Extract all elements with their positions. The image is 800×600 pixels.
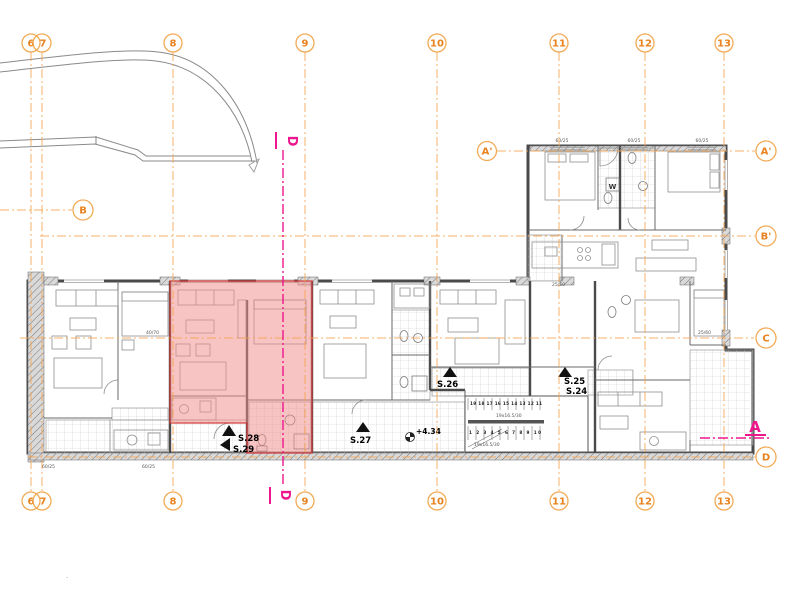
grid-bubble-aprime-right: A' (761, 147, 772, 158)
washer-label: W (609, 183, 617, 191)
unit-label-s24: S.24 (566, 387, 587, 397)
stair-step-numbers-upper: 19 18 17 16 15 14 13 12 11 (470, 401, 542, 406)
section-marker-d-bottom: D (277, 490, 292, 501)
grid-bubble-8-top: 8 (170, 39, 177, 50)
grid-bubble-11-bottom: 11 (552, 497, 566, 508)
grid-bubble-d-right: D (762, 453, 770, 464)
section-marker-d-top: D (284, 136, 299, 147)
floor-plan-canvas: 19 18 17 16 15 14 13 12 11 1 2 3 4 5 6 7… (0, 0, 800, 600)
grid-bubbles-bottom: 6 7 8 9 10 11 12 13 (22, 492, 733, 510)
grid-bubble-12-top: 12 (638, 39, 652, 50)
stair-handrail (468, 420, 544, 424)
site-boundary-curves (0, 51, 259, 172)
building: 19 18 17 16 15 14 13 12 11 1 2 3 4 5 6 7… (28, 138, 753, 470)
dim-text: 25/60 (698, 330, 711, 336)
stair-spec-upper: 19x16.5/30 (496, 413, 522, 419)
dim-text: 60/25 (628, 138, 641, 144)
dim-text: 40/70 (146, 330, 159, 336)
stair-step-numbers-lower: 1 2 3 4 5 6 7 8 9 10 (469, 430, 541, 435)
grid-bubble-13-bottom: 13 (717, 497, 731, 508)
grid-bubble-aprime-left: A' (482, 147, 493, 158)
grid-bubble-7-bottom: 7 (40, 497, 47, 508)
grid-bubble-bprime-right: B' (761, 232, 772, 243)
floor-plan-page: 19 18 17 16 15 14 13 12 11 1 2 3 4 5 6 7… (0, 0, 800, 600)
unit-label-s28: S.28 (238, 434, 259, 444)
grid-bubble-9-bottom: 9 (302, 497, 309, 508)
staircase: 19 18 17 16 15 14 13 12 11 1 2 3 4 5 6 7… (465, 396, 588, 452)
dim-text: 60/25 (696, 138, 709, 144)
dim-text: 60/25 (556, 138, 569, 144)
grid-bubble-10-top: 10 (430, 39, 444, 50)
stray-mark: . (66, 572, 68, 580)
grid-bubble-c-right: C (762, 334, 769, 345)
unit-label-s26: S.26 (437, 380, 458, 390)
section-marker-a: A (749, 418, 761, 436)
unit-label-s27: S.27 (350, 436, 371, 446)
stair-spec-lower: 19x16.5/30 (474, 442, 500, 448)
grid-bubble-7-top: 7 (40, 39, 47, 50)
grid-bubble-8-bottom: 8 (170, 497, 177, 508)
grid-bubble-12-bottom: 12 (638, 497, 652, 508)
grid-bubble-b-left: B (79, 206, 87, 217)
unit-label-s25: S.25 (564, 377, 585, 387)
dim-text: 60/25 (42, 464, 55, 470)
dim-text: 60/25 (142, 464, 155, 470)
furniture-s26-unit (440, 290, 525, 364)
grid-bubbles-top: 6 7 8 9 10 11 12 13 (22, 34, 733, 52)
grid-bubble-10-bottom: 10 (430, 497, 444, 508)
unit-label-s29: S.29 (233, 445, 254, 455)
grid-bubble-11-top: 11 (552, 39, 566, 50)
grid-bubble-13-top: 13 (717, 39, 731, 50)
entrance-triangle-s25 (558, 367, 572, 377)
grid-bubble-9-top: 9 (302, 39, 309, 50)
